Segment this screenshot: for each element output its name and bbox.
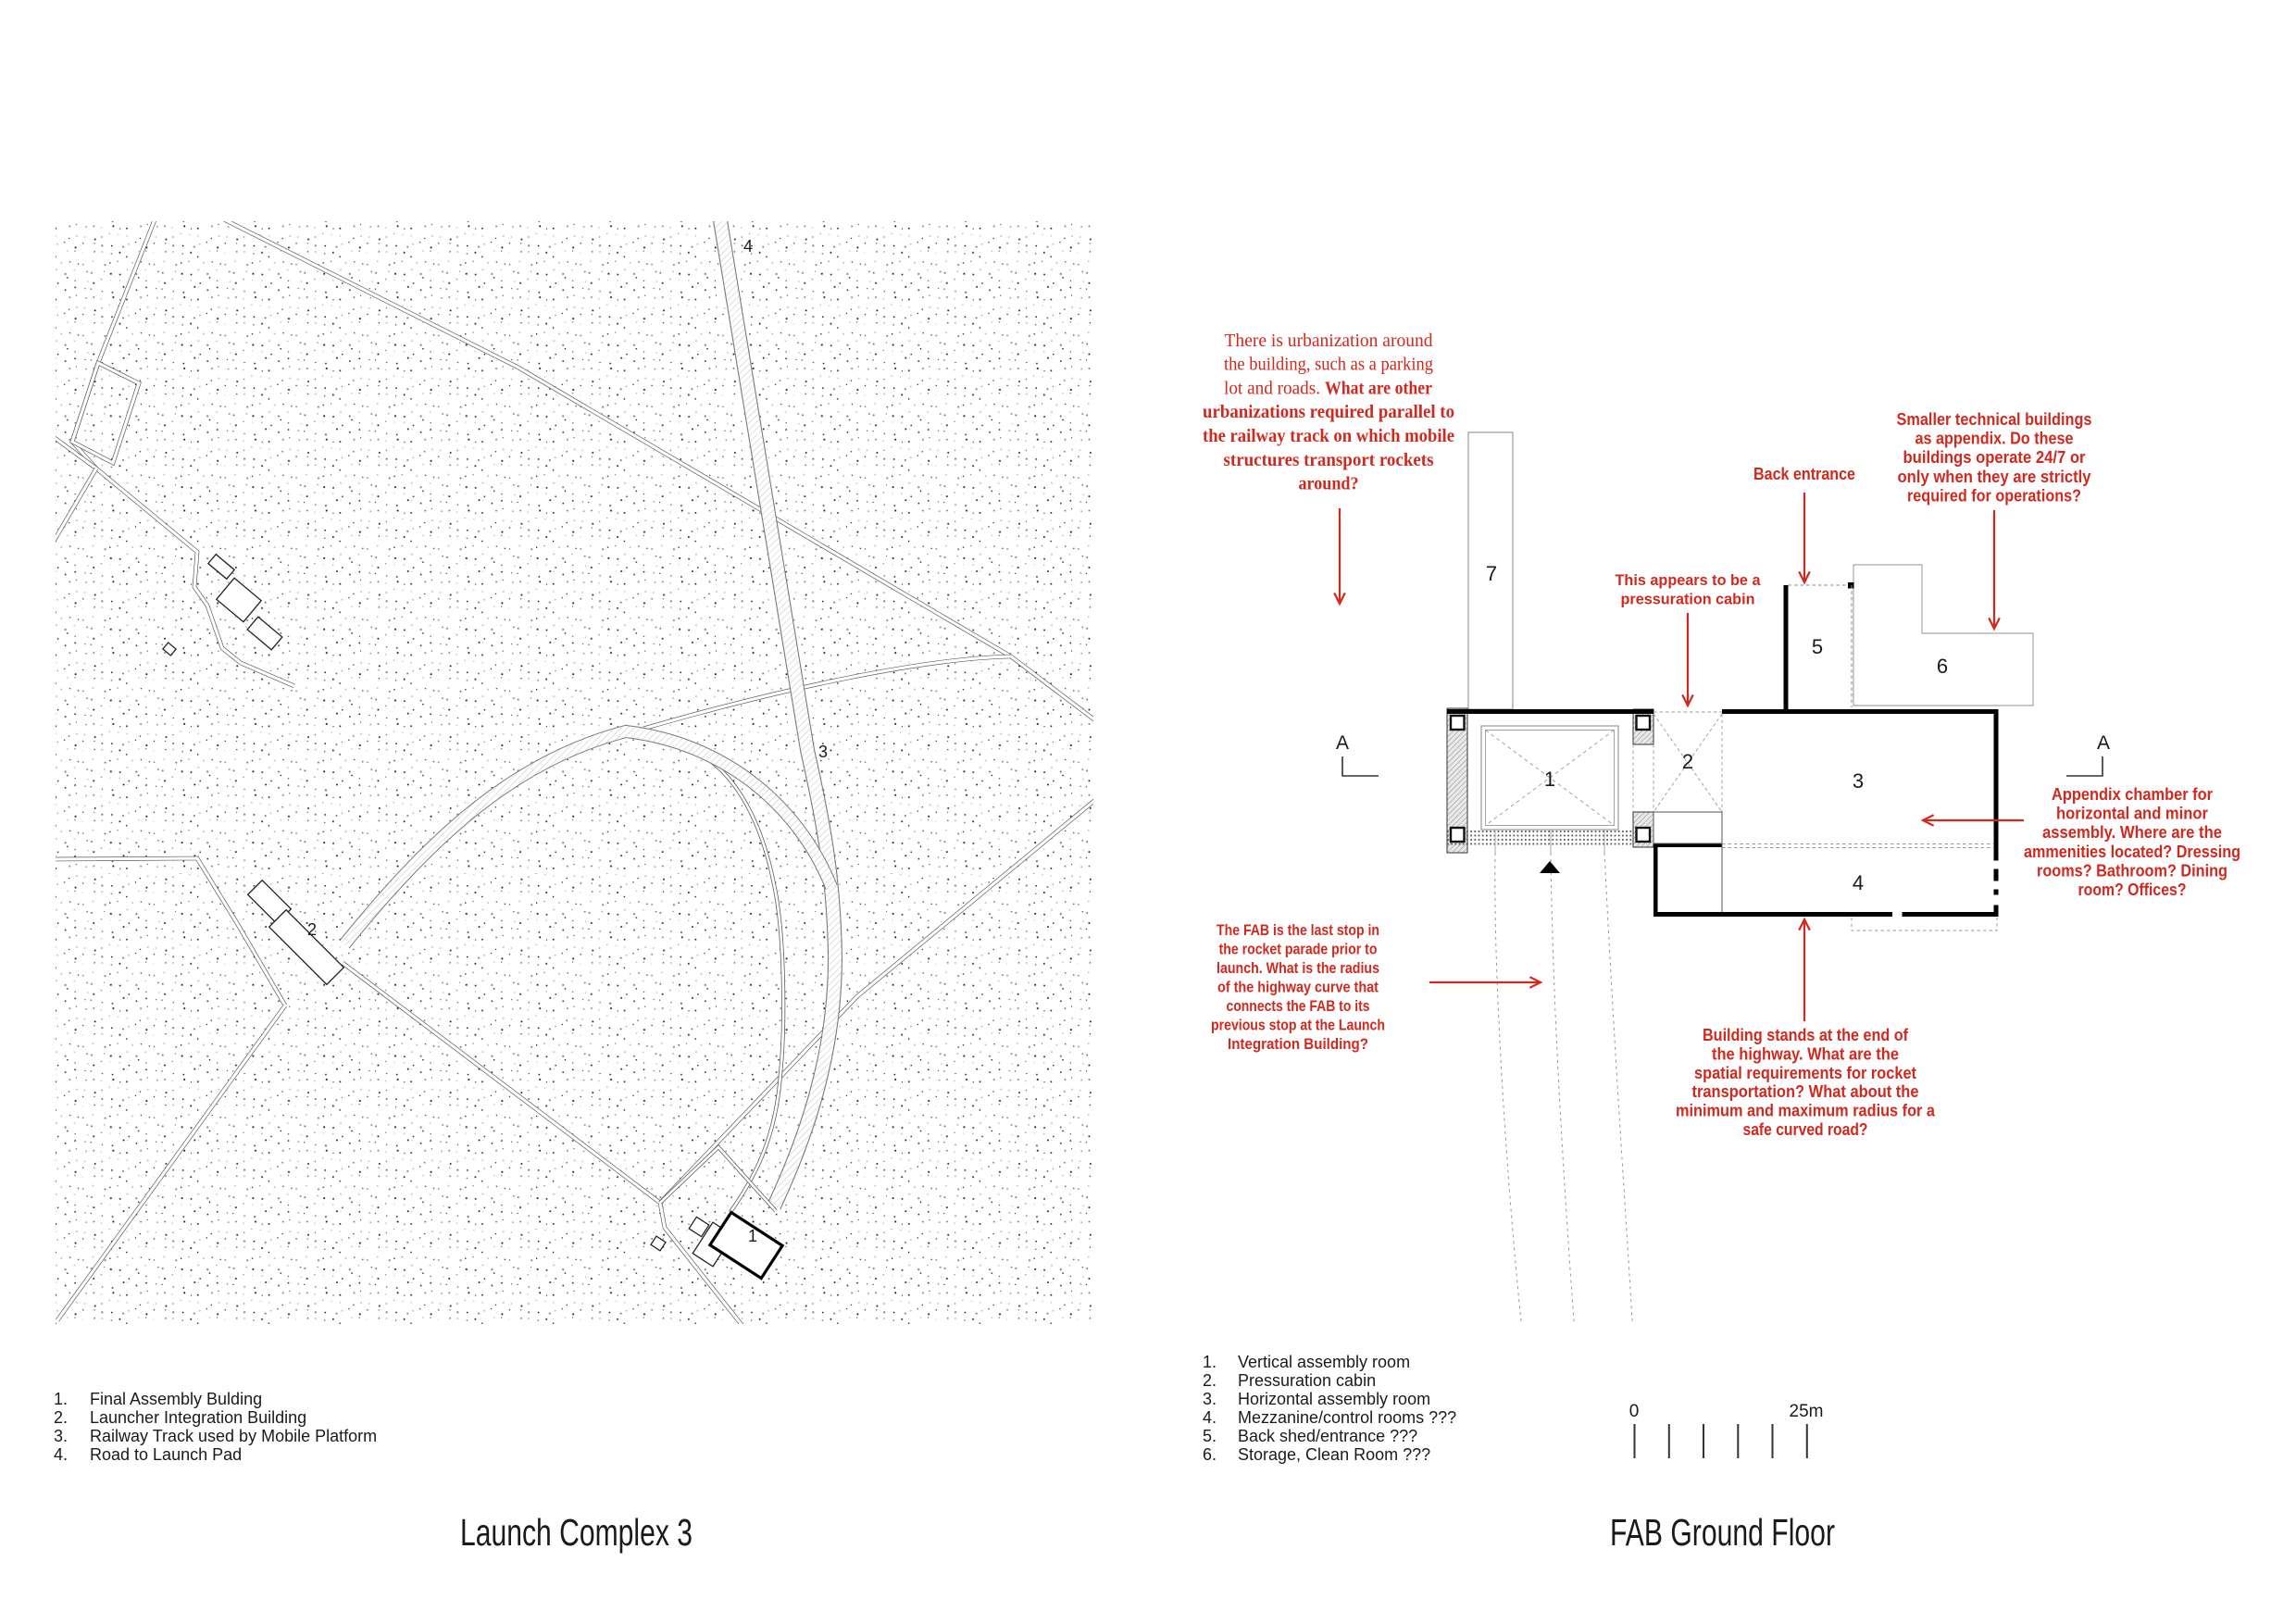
svg-text:5.: 5. bbox=[1203, 1427, 1217, 1445]
svg-text:Appendix chamber for: Appendix chamber for bbox=[2052, 785, 2213, 804]
svg-text:transportation? What about the: transportation? What about the bbox=[1692, 1082, 1919, 1101]
svg-text:Integration Building?: Integration Building? bbox=[1228, 1035, 1368, 1053]
svg-text:2.: 2. bbox=[54, 1408, 68, 1427]
svg-text:safe curved road?: safe curved road? bbox=[1743, 1120, 1868, 1139]
svg-text:6: 6 bbox=[1937, 655, 1948, 678]
svg-text:required for operations?: required for operations? bbox=[1907, 486, 2081, 505]
svg-text:horizontal and minor: horizontal and minor bbox=[2056, 805, 2208, 823]
svg-text:Storage, Clean Room ???: Storage, Clean Room ??? bbox=[1238, 1445, 1430, 1464]
svg-text:2: 2 bbox=[307, 920, 317, 939]
svg-text:Launcher Integration Building: Launcher Integration Building bbox=[90, 1408, 306, 1427]
svg-text:25m: 25m bbox=[1790, 1402, 1824, 1421]
svg-text:spatial requirements for rocke: spatial requirements for rocket bbox=[1694, 1064, 1916, 1082]
svg-text:launch. What is the radius: launch. What is the radius bbox=[1217, 959, 1379, 977]
svg-text:Road to Launch Pad: Road to Launch Pad bbox=[90, 1445, 242, 1464]
svg-text:3.: 3. bbox=[1203, 1390, 1217, 1408]
svg-text:4.: 4. bbox=[54, 1445, 68, 1464]
svg-text:Back entrance: Back entrance bbox=[1753, 465, 1855, 483]
svg-text:FAB Ground Floor: FAB Ground Floor bbox=[1610, 1511, 1835, 1554]
svg-text:the railway track on which mob: the railway track on which mobile bbox=[1203, 426, 1454, 446]
svg-text:1: 1 bbox=[1544, 768, 1555, 791]
svg-text:There is urbanization around: There is urbanization around bbox=[1225, 331, 1433, 351]
svg-text:around?: around? bbox=[1299, 474, 1359, 494]
svg-text:ammenities located? Dressing: ammenities located? Dressing bbox=[2024, 843, 2240, 861]
svg-text:Mezzanine/control rooms ???: Mezzanine/control rooms ??? bbox=[1238, 1408, 1456, 1427]
svg-text:assembly. Where are the: assembly. Where are the bbox=[2042, 823, 2222, 842]
svg-text:only when they are strictly: only when they are strictly bbox=[1898, 468, 2091, 486]
svg-text:the highway. What are the: the highway. What are the bbox=[1712, 1044, 1899, 1063]
svg-text:room? Offices?: room? Offices? bbox=[2078, 881, 2187, 899]
svg-text:1.: 1. bbox=[54, 1390, 68, 1408]
svg-text:buildings operate 24/7 or: buildings operate 24/7 or bbox=[1903, 448, 2086, 467]
svg-text:1.: 1. bbox=[1203, 1353, 1217, 1371]
svg-text:What are other: What are other bbox=[1325, 378, 1432, 398]
svg-text:pressuration cabin: pressuration cabin bbox=[1621, 591, 1755, 608]
svg-text:The FAB is the last stop in: The FAB is the last stop in bbox=[1217, 921, 1379, 939]
svg-text:3.: 3. bbox=[54, 1427, 68, 1445]
svg-text:Horizontal assembly room: Horizontal assembly room bbox=[1238, 1390, 1430, 1408]
svg-text:connects the FAB to its: connects the FAB to its bbox=[1227, 997, 1370, 1015]
svg-text:rooms? Bathroom? Dining: rooms? Bathroom? Dining bbox=[2037, 861, 2227, 880]
svg-text:Building stands at the end of: Building stands at the end of bbox=[1703, 1026, 1909, 1044]
svg-text:as appendix. Do these: as appendix. Do these bbox=[1915, 430, 2074, 448]
svg-text:This appears to be a: This appears to be a bbox=[1616, 571, 1762, 589]
svg-text:Back shed/entrance ???: Back shed/entrance ??? bbox=[1238, 1427, 1417, 1445]
svg-text:0: 0 bbox=[1629, 1402, 1640, 1421]
svg-text:Final Assembly Bulding: Final Assembly Bulding bbox=[90, 1390, 262, 1408]
svg-text:3: 3 bbox=[818, 743, 828, 761]
svg-text:lot and roads.: lot and roads. bbox=[1224, 378, 1320, 398]
svg-text:minimum and maximum radius for: minimum and maximum radius for a bbox=[1676, 1102, 1936, 1120]
svg-text:3: 3 bbox=[1853, 769, 1864, 793]
svg-text:Vertical assembly room: Vertical assembly room bbox=[1238, 1353, 1410, 1371]
svg-text:4: 4 bbox=[1853, 871, 1864, 894]
svg-text:7: 7 bbox=[1486, 562, 1497, 585]
svg-text:A: A bbox=[1336, 732, 1349, 754]
svg-text:Launch Complex 3: Launch Complex 3 bbox=[460, 1511, 693, 1554]
svg-text:5: 5 bbox=[1812, 635, 1823, 658]
svg-text:of the highway curve that: of the highway curve that bbox=[1217, 979, 1379, 996]
svg-text:the rocket parade prior to: the rocket parade prior to bbox=[1219, 941, 1378, 958]
svg-text:structures transport rockets: structures transport rockets bbox=[1224, 450, 1434, 470]
svg-text:A: A bbox=[2097, 732, 2110, 754]
svg-text:6.: 6. bbox=[1203, 1445, 1217, 1464]
svg-text:previous stop at the Launch: previous stop at the Launch bbox=[1211, 1017, 1385, 1034]
svg-text:Pressuration cabin: Pressuration cabin bbox=[1238, 1371, 1376, 1390]
svg-text:urbanizations required paralle: urbanizations required parallel to bbox=[1203, 402, 1454, 422]
svg-text:Smaller technical buildings: Smaller technical buildings bbox=[1897, 410, 2092, 429]
svg-text:Railway Track used by Mobile P: Railway Track used by Mobile Platform bbox=[90, 1427, 377, 1445]
svg-text:2.: 2. bbox=[1203, 1371, 1217, 1390]
svg-text:2: 2 bbox=[1682, 750, 1693, 773]
svg-text:the building, such as a parkin: the building, such as a parking bbox=[1224, 355, 1433, 375]
svg-text:4.: 4. bbox=[1203, 1408, 1217, 1427]
svg-text:1: 1 bbox=[748, 1227, 757, 1245]
svg-text:4: 4 bbox=[743, 237, 753, 256]
